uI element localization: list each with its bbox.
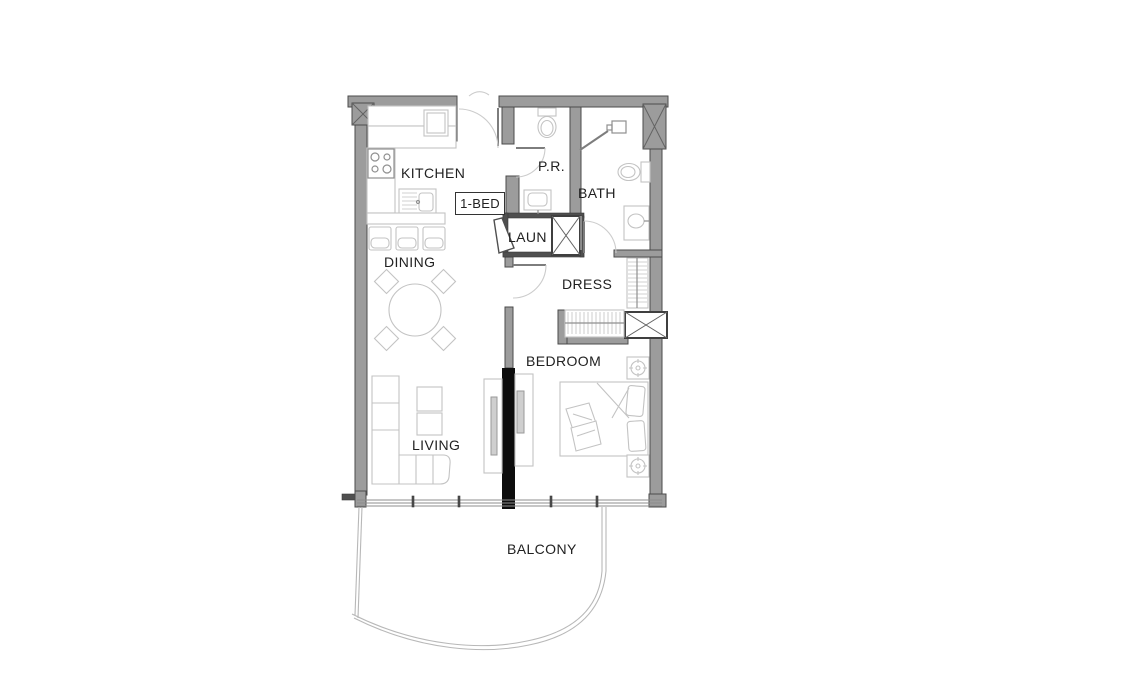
room-label-powder-room: P.R. xyxy=(538,158,565,174)
dining-furniture xyxy=(374,269,455,350)
nightstand-lamp-icon xyxy=(627,357,649,379)
room-label-dress: DRESS xyxy=(562,276,612,292)
room-label-laundry: LAUN xyxy=(508,229,547,245)
bar-stools xyxy=(369,227,445,250)
balcony-outline xyxy=(352,507,606,650)
bedroom-furniture xyxy=(515,357,649,477)
room-label-bedroom: BEDROOM xyxy=(526,353,601,369)
unit-tag: 1-BED xyxy=(455,192,505,215)
accent-wall xyxy=(502,368,515,509)
room-label-dining: DINING xyxy=(384,254,435,270)
room-label-bath: BATH xyxy=(578,185,616,201)
room-label-balcony: BALCONY xyxy=(507,541,577,557)
nightstand-lamp-icon xyxy=(627,455,649,477)
floor-plan: KITCHEN 1-BED P.R. BATH LAUN DINING DRES… xyxy=(0,0,1122,678)
floor-plan-drawing xyxy=(0,0,1122,678)
room-label-kitchen: KITCHEN xyxy=(401,165,465,181)
room-label-living: LIVING xyxy=(412,437,460,453)
sink-icon xyxy=(399,189,436,215)
living-furniture xyxy=(372,376,502,484)
